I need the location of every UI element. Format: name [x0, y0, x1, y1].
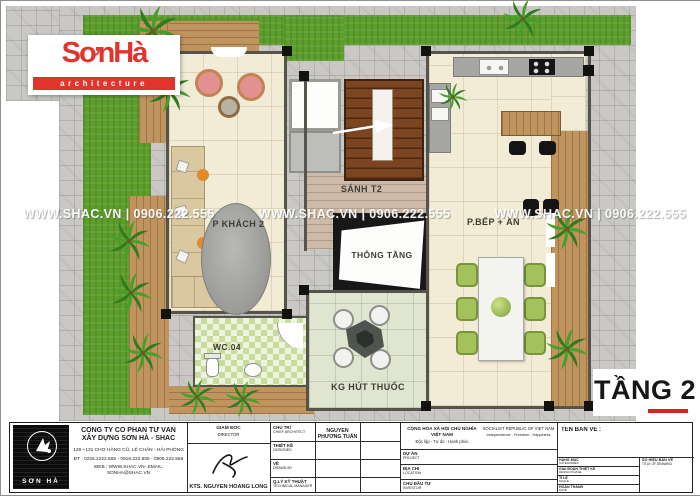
- republic-vi: CỘNG HÒA XÃ HỘI CHỦ NGHĨA VIỆT NAM Độc l…: [402, 426, 482, 444]
- lawn-middle: [284, 15, 344, 61]
- drawing-row-label: TỈ LỆ SCALE: [559, 476, 637, 484]
- watermark: WWW.SHAC.VN | 0906.222.555WWW.SHAC.VN | …: [1, 203, 700, 225]
- column: [544, 401, 554, 411]
- column: [421, 401, 431, 411]
- watermark-text: WWW.SHAC.VN | 0906.222.555: [259, 207, 451, 221]
- chair: [369, 305, 390, 326]
- french-door-icon: [211, 47, 247, 57]
- staff-label-en: DESIGNED: [273, 448, 314, 452]
- director-cell: GIÁM ĐỐC DIRECTOR: [188, 426, 269, 437]
- staff-row-label: THIẾT KẾ DESIGNED: [273, 443, 314, 453]
- palm-tree-icon: [178, 378, 216, 416]
- republic-en-line1: SOCIALIST REPUBLIC OF VIET NAM: [482, 426, 555, 431]
- dining-chair: [524, 331, 546, 355]
- drawing-row-label: HOÀN THÀNH DATE: [559, 485, 637, 493]
- palm-tree-icon: [109, 271, 153, 315]
- drawing-row-label: GIAI ĐOẠN THIẾT KẾ DESIGN PHASE: [559, 467, 637, 475]
- kitchen-counter: [453, 57, 584, 77]
- palm-tree-icon: [545, 327, 589, 371]
- palm-tree-icon: [224, 380, 262, 418]
- title-block: SƠN HÀ CÔNG TY CỔ PHẦN TƯ VẤN XÂY DỰNG S…: [9, 422, 693, 493]
- company-logo-square: SƠN HÀ: [13, 425, 69, 489]
- dining-chair: [524, 297, 546, 321]
- coffee-table: [218, 96, 240, 118]
- dining-chair: [524, 263, 546, 287]
- drawing-label-en: DATE: [559, 489, 637, 493]
- divider: [400, 423, 401, 492]
- sink: [479, 59, 509, 75]
- staff-label-en: CHIEF ARCHITECT: [273, 430, 314, 434]
- room-label-void: THÔNG TẦNG: [351, 250, 412, 260]
- drawing-label-en: CATEGORIES: [559, 462, 637, 466]
- divider: [270, 459, 400, 460]
- brand-subtitle: architecture: [33, 77, 175, 90]
- column: [282, 309, 292, 319]
- dining-chair: [456, 331, 478, 355]
- floorplan-page: P KHÁCH 2 SÁNH T2 THÔNG TẦNG P.BẾP + ĂN: [0, 0, 700, 496]
- floor-label-block: TẦNG 2: [593, 369, 697, 416]
- project-label-en: LOCATION: [403, 471, 483, 475]
- palm-tree-icon: [122, 332, 164, 374]
- floor-label-underline: [648, 409, 688, 413]
- chair: [333, 347, 354, 368]
- room-label-wc: WC.04: [197, 342, 257, 352]
- company-logo-ring: [27, 431, 57, 461]
- void-panel: THÔNG TẦNG: [338, 219, 426, 291]
- republic-vi-line2: Độc lập - Tự do - Hạnh phúc: [402, 439, 482, 444]
- company-name-line2: XÂY DỰNG SƠN HÀ - SHAC: [72, 435, 185, 443]
- dining-chair: [456, 263, 478, 287]
- director-name: KTS. NGUYỄN HOÀNG LONG: [188, 484, 269, 491]
- divider: [270, 423, 271, 492]
- island-counter: [501, 111, 561, 136]
- staff-label-en: DRAWN BY: [273, 466, 314, 470]
- project-row-label: CHỦ ĐẦU TƯ INVESTOR: [403, 481, 483, 491]
- palm-tree-icon: [502, 0, 544, 40]
- plant-icon: [438, 82, 468, 112]
- company-logo-mark-icon: [30, 433, 55, 458]
- divider: [639, 457, 640, 492]
- column: [282, 46, 292, 56]
- project-label-en: PROJECT: [403, 456, 483, 460]
- table-plant-icon: [491, 297, 511, 317]
- chief-architect-name: NGUYỄN PHƯƠNG TUẤN: [316, 428, 359, 440]
- watermark-text: WWW.SHAC.VN | 0906.222.555: [495, 207, 687, 221]
- column: [161, 309, 171, 319]
- staff-label-en: TECHNICAL MANAGER: [273, 484, 314, 488]
- wash-basin: [244, 363, 262, 377]
- stair-direction-arrow: [331, 113, 401, 139]
- column: [584, 46, 594, 56]
- column: [299, 71, 309, 81]
- brand-name: SơnHà: [28, 35, 180, 71]
- drawing-row-label: HẠNG MỤC CATEGORIES: [559, 458, 637, 466]
- company-address: 129 +131 CHỢ HÀNG CŨ, LÊ CHÂN - HẢI PHÒN…: [72, 448, 185, 454]
- company-info: CÔNG TY CỔ PHẦN TƯ VẤN XÂY DỰNG SƠN HÀ -…: [72, 427, 185, 477]
- column: [583, 65, 594, 76]
- armchair: [237, 73, 265, 101]
- staff-row-label: CHỦ TRÌ CHIEF ARCHITECT: [273, 425, 314, 435]
- toilet-tank: [204, 353, 221, 359]
- republic-en-line2: Independence - Freedom - Happiness: [482, 433, 555, 438]
- republic-en: SOCIALIST REPUBLIC OF VIET NAM Independe…: [482, 426, 555, 438]
- floor-label: TẦNG 2: [593, 369, 697, 411]
- drawing-number-en: TITLE OF DRAWING: [642, 463, 692, 467]
- drawing-label-en: SCALE: [559, 480, 637, 484]
- watermark-text: WWW.SHAC.VN | 0906.222.555: [23, 207, 215, 221]
- staff-row-label: VẼ DRAWN BY: [273, 461, 314, 471]
- project-row-label: DỰ ÁN PROJECT: [403, 451, 483, 461]
- bar-stool: [509, 141, 526, 155]
- bar-stool: [539, 141, 556, 155]
- divider: [270, 477, 400, 478]
- column: [421, 46, 431, 56]
- staff-row-label: Q.LÝ KỸ THUẬT TECHNICAL MANAGER: [273, 479, 314, 489]
- drawing-label-en: DESIGN PHASE: [559, 471, 637, 475]
- divider: [187, 443, 270, 444]
- palm-tree-icon: [107, 219, 151, 263]
- drawing-title-label: TÊN BẢN VẼ :: [561, 427, 691, 434]
- cushion: [197, 169, 209, 181]
- chair: [333, 309, 354, 330]
- company-phone: ĐT : 0225.2222.555 - 0916.222.555 - 0906…: [72, 457, 185, 463]
- republic-vi-line1: CỘNG HÒA XÃ HỘI CHỦ NGHĨA VIỆT NAM: [402, 426, 482, 437]
- project-label-en: INVESTOR: [403, 486, 483, 490]
- column: [299, 285, 309, 295]
- void-area: THÔNG TẦNG: [333, 213, 431, 297]
- project-row-label: ĐỊA CHỈ LOCATION: [403, 466, 483, 476]
- room-label-hall: SÁNH T2: [319, 184, 404, 194]
- divider: [360, 423, 361, 492]
- company-web: WEB : WWW.SHAC.VN- EMAIL: SONHA@SHAC.VN: [72, 465, 185, 477]
- armchair: [195, 69, 223, 97]
- dining-chair: [456, 297, 478, 321]
- director-signature: [205, 447, 255, 479]
- director-label-en: DIRECTOR: [188, 432, 269, 437]
- room-label-smoking: KG HÚT THUỐC: [313, 382, 423, 392]
- divider: [270, 441, 400, 442]
- toilet: [206, 357, 219, 377]
- brand-logo: SơnHà architecture: [28, 35, 180, 95]
- door-gap: [546, 253, 555, 287]
- drawing-number-label: SỐ HIỆU BẢN VẼ TITLE OF DRAWING: [642, 458, 692, 466]
- stove: [529, 59, 555, 75]
- company-logo-text: SƠN HÀ: [13, 478, 69, 485]
